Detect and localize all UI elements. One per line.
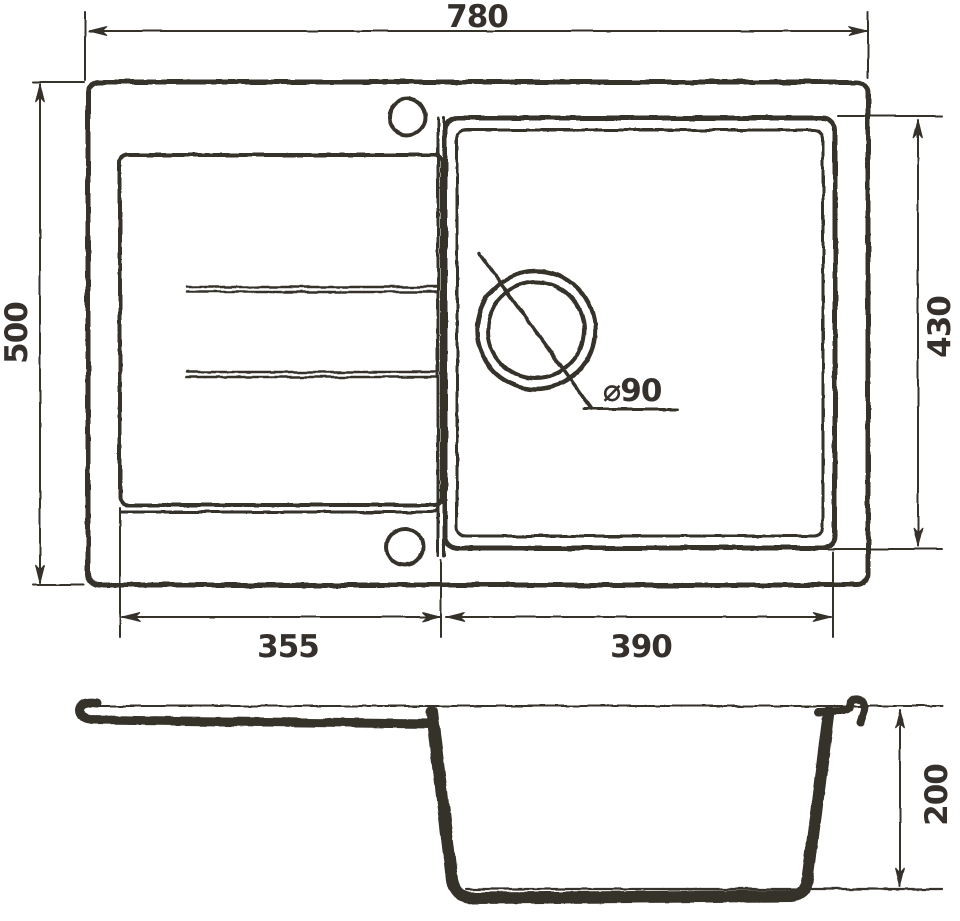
sink-dimension-drawing: 780 500 430 355 390 ⌀90 200 bbox=[0, 0, 960, 921]
drain-diameter-label: ⌀90 bbox=[603, 373, 662, 409]
dim-200-label: 200 bbox=[919, 764, 955, 826]
bowl-rim-inner-outline bbox=[457, 130, 823, 536]
faucet-hole-top bbox=[389, 99, 425, 135]
dim-430-label: 430 bbox=[922, 296, 958, 358]
dimension-lines bbox=[33, 12, 942, 886]
drain-leader-line bbox=[479, 253, 592, 409]
section-view bbox=[79, 699, 942, 898]
dim-355-label: 355 bbox=[257, 629, 319, 665]
dimension-labels: 780 500 430 355 390 ⌀90 200 bbox=[0, 0, 958, 826]
dim-390-label: 390 bbox=[610, 629, 672, 665]
section-bowl-profile bbox=[432, 712, 829, 898]
dim-780-label: 780 bbox=[446, 0, 508, 35]
top-view bbox=[88, 82, 868, 585]
drainboard-recess-outline bbox=[120, 155, 442, 505]
technical-drawing-canvas: 780 500 430 355 390 ⌀90 200 bbox=[0, 0, 960, 921]
bowl-rim-outer-outline bbox=[445, 118, 835, 548]
faucet-hole-bottom bbox=[387, 529, 423, 565]
dim-500-label: 500 bbox=[0, 302, 35, 364]
